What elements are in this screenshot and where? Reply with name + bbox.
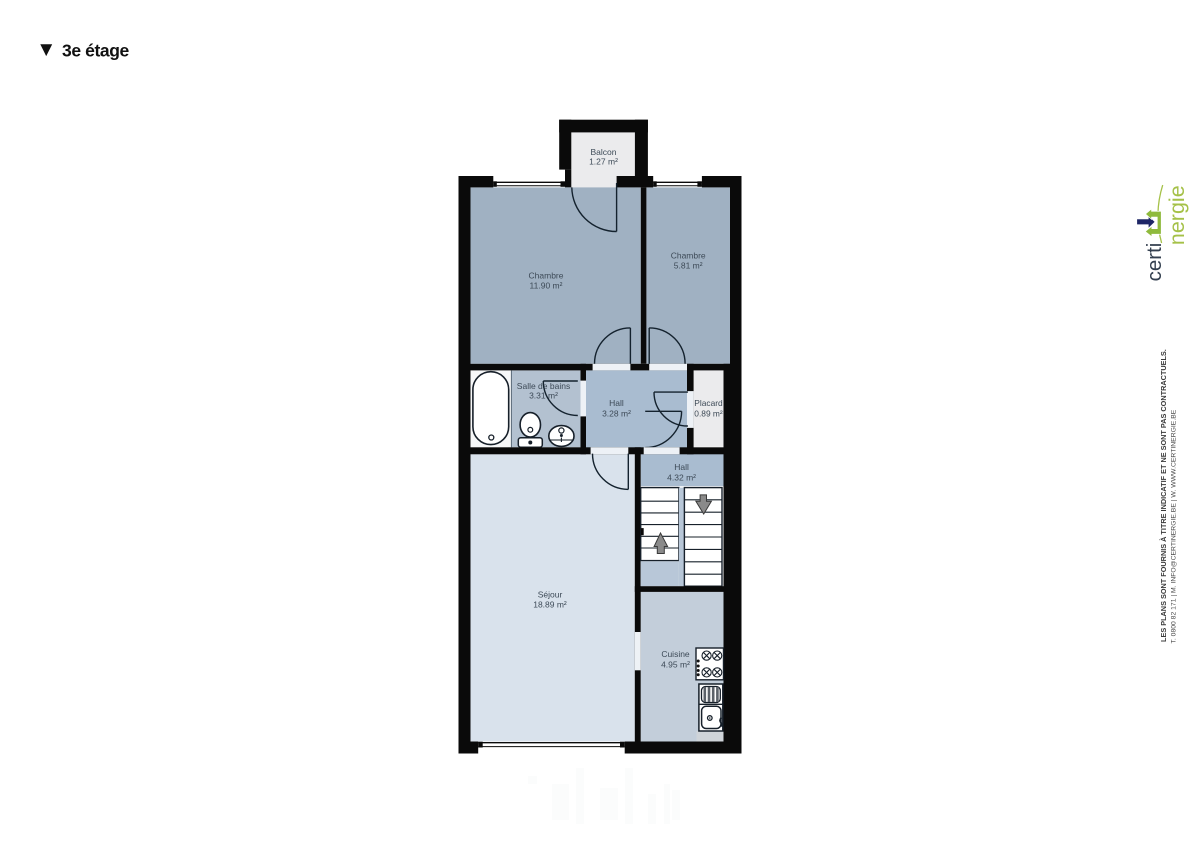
svg-text:18.89 m²: 18.89 m² (533, 600, 567, 610)
svg-text:11.90 m²: 11.90 m² (530, 280, 563, 290)
svg-text:Hall: Hall (609, 398, 624, 408)
svg-text:Hall: Hall (674, 462, 689, 472)
svg-text:T. 0800 82 171 | M. INFO@CERTI: T. 0800 82 171 | M. INFO@CERTINERGIE.BE … (1171, 409, 1178, 643)
svg-text:Chambre: Chambre (529, 271, 564, 281)
svg-text:LES PLANS SONT FOURNIS À TITRE: LES PLANS SONT FOURNIS À TITRE INDICATIF… (1159, 349, 1168, 642)
svg-text:nergie: nergie (1165, 185, 1189, 245)
svg-text:3.28 m²: 3.28 m² (602, 408, 631, 418)
svg-text:Séjour: Séjour (538, 590, 563, 600)
svg-text:0.89 m²: 0.89 m² (694, 408, 723, 418)
svg-text:Cuisine: Cuisine (661, 649, 690, 659)
svg-text:4.95 m²: 4.95 m² (661, 659, 690, 669)
svg-text:3.31 m²: 3.31 m² (529, 391, 558, 401)
svg-text:Placard: Placard (694, 398, 723, 408)
svg-text:4.32 m²: 4.32 m² (667, 473, 696, 483)
svg-text:5.81 m²: 5.81 m² (674, 260, 703, 270)
svg-text:certi: certi (1143, 243, 1166, 282)
svg-text:Chambre: Chambre (671, 251, 706, 261)
svg-text:Balcon: Balcon (591, 147, 617, 157)
svg-text:3e étage: 3e étage (62, 41, 130, 61)
svg-text:1.27 m²: 1.27 m² (589, 157, 618, 167)
